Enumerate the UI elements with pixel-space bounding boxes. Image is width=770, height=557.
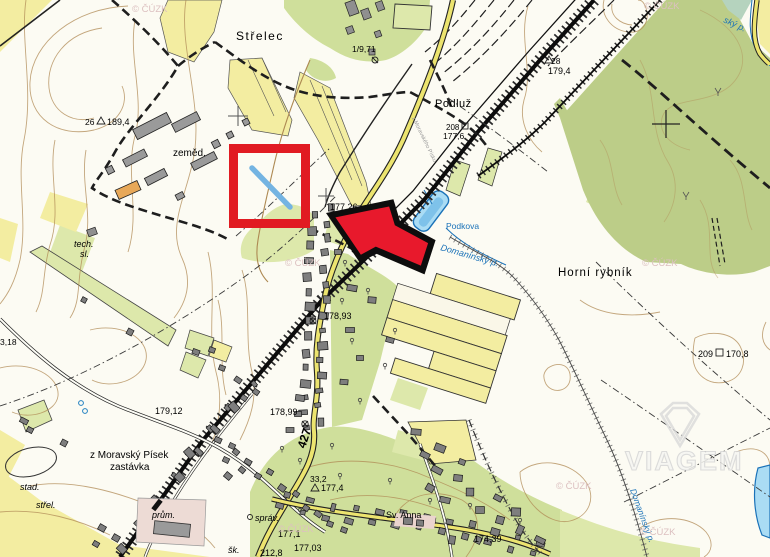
svg-text:Střelec: Střelec (236, 29, 284, 43)
svg-text:šk.: šk. (228, 545, 240, 555)
svg-text:209: 209 (698, 349, 713, 359)
svg-text:177,6: 177,6 (443, 131, 465, 141)
svg-text:tech.: tech. (74, 239, 94, 249)
svg-text:zeměd.: zeměd. (173, 148, 206, 159)
svg-text:Podluž: Podluž (435, 98, 472, 110)
svg-text:179,4: 179,4 (548, 66, 571, 76)
svg-text:střel.: střel. (36, 500, 56, 510)
svg-text:Horní rybník: Horní rybník (558, 267, 633, 279)
svg-text:179,12: 179,12 (155, 406, 183, 416)
svg-text:28: 28 (551, 56, 561, 66)
svg-text:26: 26 (85, 117, 95, 127)
svg-text:© ČÚZK: © ČÚZK (278, 524, 314, 535)
svg-text:177,03: 177,03 (294, 543, 322, 553)
svg-text:212,8: 212,8 (260, 548, 283, 557)
svg-text:sl.: sl. (80, 249, 89, 259)
svg-text:3,18: 3,18 (0, 337, 17, 347)
svg-text:Podkova: Podkova (446, 221, 479, 231)
svg-text:prům.: prům. (151, 510, 175, 520)
svg-text:178,93: 178,93 (324, 311, 352, 321)
svg-text:177,4: 177,4 (321, 483, 344, 493)
svg-text:© ČÚZK: © ČÚZK (644, 1, 680, 12)
svg-text:VIAGEM: VIAGEM (625, 446, 744, 476)
svg-text:Sv. Anna: Sv. Anna (386, 510, 421, 520)
svg-text:© ČÚZK: © ČÚZK (285, 258, 321, 269)
svg-text:178,99: 178,99 (270, 407, 298, 417)
svg-text:stad.: stad. (20, 482, 40, 492)
svg-text:© ČÚZK: © ČÚZK (640, 527, 676, 538)
svg-text:© ČÚZK: © ČÚZK (556, 481, 592, 492)
svg-text:© ČÚZK: © ČÚZK (132, 4, 168, 15)
svg-text:© ČÚZK: © ČÚZK (642, 258, 678, 269)
svg-text:170,8: 170,8 (726, 349, 749, 359)
svg-text:174,39: 174,39 (474, 534, 502, 544)
svg-text:189,4: 189,4 (107, 117, 130, 127)
svg-text:1/9,71: 1/9,71 (352, 44, 376, 54)
svg-text:z Moravský Písek: z Moravský Písek (90, 450, 169, 461)
svg-text:zastávka: zastávka (110, 462, 150, 473)
svg-text:správ.: správ. (255, 513, 279, 523)
